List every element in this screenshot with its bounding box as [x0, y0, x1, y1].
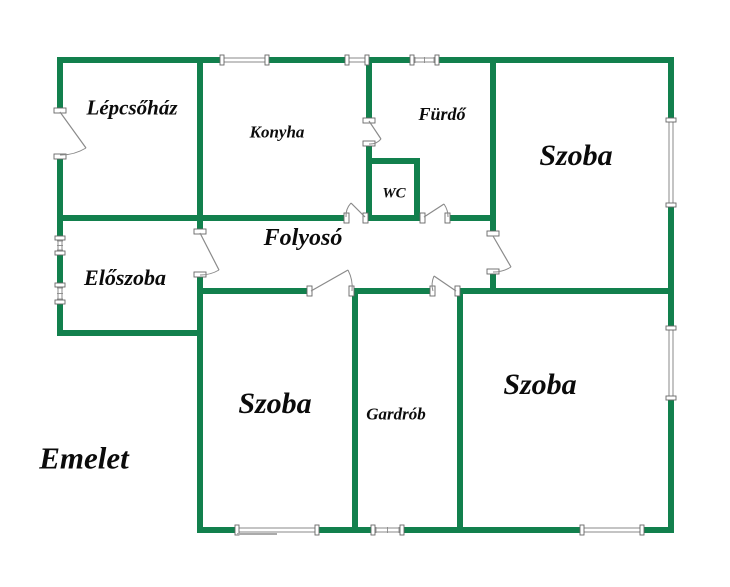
wall-segment-12 [317, 527, 373, 533]
wall-segment-8 [668, 57, 674, 120]
window-5-cap [55, 251, 65, 255]
wall-segment-30 [490, 272, 496, 294]
wall-segment-4 [57, 57, 63, 110]
wall-segment-9 [668, 205, 674, 328]
room-label-szoba-also-jobb: Szoba [503, 370, 576, 400]
room-label-szoba-also-bal: Szoba [238, 389, 311, 419]
door-konyha-folyoso-jamb [363, 213, 368, 223]
window-3-cap [666, 118, 676, 122]
wall-segment-25 [366, 57, 372, 120]
wall-segment-27 [366, 158, 420, 164]
window-1-cap [365, 55, 369, 65]
window-6-cap [55, 300, 65, 304]
room-label-eloszoba: Előszoba [84, 267, 166, 289]
room-label-lepcsohaz: Lépcsőház [87, 98, 178, 119]
door-szoba-also-bal-folyoso-jamb [349, 286, 354, 296]
wall-segment-31 [352, 288, 358, 533]
door-furdo-folyoso-jamb [420, 213, 425, 223]
wall-segment-14 [642, 527, 674, 533]
wall-segment-16 [366, 215, 422, 221]
window-5-cap [55, 236, 65, 240]
wall-segment-1 [267, 57, 347, 63]
wall-segment-18 [57, 330, 203, 336]
window-6-cap [55, 283, 65, 287]
door-gardrob-folyoso-opening [432, 287, 458, 295]
window-8-cap [371, 525, 375, 535]
wall-segment-10 [668, 398, 674, 533]
wall-segment-20 [352, 288, 432, 294]
wall-segment-24 [197, 275, 203, 533]
floor-label: Emelet [39, 443, 129, 474]
window-3-cap [666, 203, 676, 207]
door-szoba-felso-folyoso-jamb [487, 231, 499, 236]
door-eloszoba-folyoso-opening [195, 231, 205, 275]
wall-segment-3 [437, 57, 674, 63]
floor-plan: LépcsőházKonyhaFürdőWCSzobaFolyosóElőszo… [0, 0, 730, 587]
room-label-wc: WC [382, 187, 405, 202]
wall-segment-15 [57, 215, 346, 221]
window-9-cap [580, 525, 584, 535]
door-szoba-felso-folyoso-opening [488, 233, 498, 272]
wall-segment-19 [197, 288, 309, 294]
room-label-szoba-felso: Szoba [539, 141, 612, 171]
wall-segment-6 [57, 253, 63, 285]
window-2-cap [435, 55, 439, 65]
door-konyha-furdo-jamb [363, 118, 375, 123]
door-konyha-folyoso-jamb [344, 213, 349, 223]
window-7-cap [315, 525, 319, 535]
room-label-furdo: Fürdő [418, 105, 465, 123]
window-0-cap [220, 55, 224, 65]
wall-segment-17 [448, 215, 496, 221]
window-2-cap [410, 55, 414, 65]
wall-segment-32 [457, 288, 463, 533]
wall-segment-2 [367, 57, 412, 63]
window-9-cap [640, 525, 644, 535]
door-konyha-furdo-opening [364, 120, 374, 144]
window-4-cap [666, 396, 676, 400]
wall-segment-22 [197, 57, 203, 215]
window-1-cap [345, 55, 349, 65]
floor-plan-svg [0, 0, 730, 587]
wall-segment-28 [414, 158, 420, 221]
wall-segment-13 [402, 527, 582, 533]
wall-segment-26 [366, 144, 372, 221]
room-label-konyha: Konyha [250, 124, 305, 141]
room-label-folyoso: Folyosó [264, 226, 343, 250]
wall-segment-29 [490, 57, 496, 233]
window-4-cap [666, 326, 676, 330]
window-0-cap [265, 55, 269, 65]
wall-segment-5 [57, 157, 63, 238]
window-8-cap [400, 525, 404, 535]
room-label-gardrob: Gardrób [366, 406, 426, 423]
